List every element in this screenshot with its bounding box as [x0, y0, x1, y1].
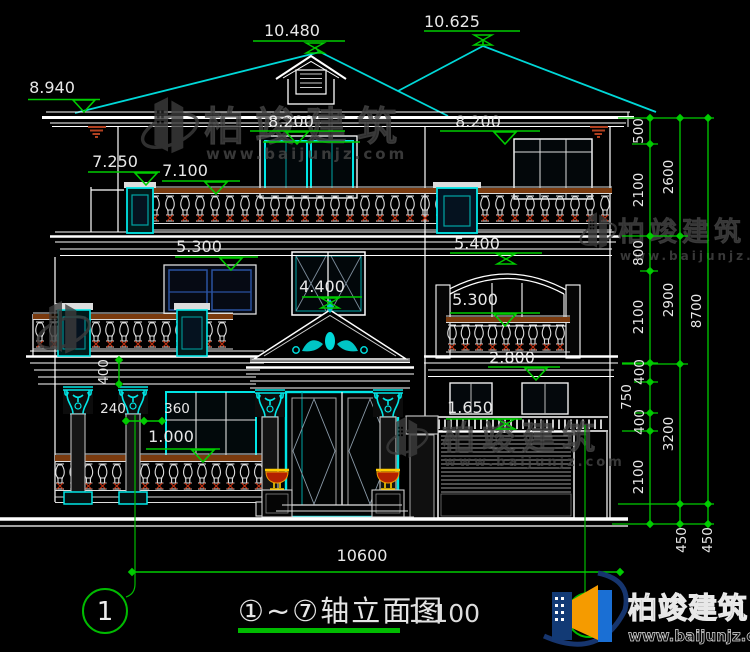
watermark-url: www.baijunjz.com — [444, 455, 625, 470]
elev-ridge-right: 10.625 — [424, 12, 480, 31]
dormer — [276, 56, 346, 104]
flower-urn — [262, 470, 292, 517]
balustrade-floor2-right — [446, 316, 570, 352]
svg-text:750: 750 — [619, 384, 635, 410]
title-underline — [238, 628, 400, 633]
drawing-scale: 1:100 — [408, 599, 480, 628]
svg-text:2100: 2100 — [631, 173, 647, 207]
cad-elevation-screenshot: 柏竣建筑 www.baijunjz.com 柏竣建筑 www.baijunjz.… — [0, 0, 750, 652]
elev-porch-rail: 1.000 — [148, 427, 194, 446]
elev-pediment: 4.400 — [299, 277, 345, 296]
entrance-entablature — [246, 361, 414, 388]
elev-window-head: 2.800 — [489, 348, 535, 367]
dim-overall-width: 10600 — [337, 546, 388, 565]
balustrade-floor2-left — [33, 303, 233, 356]
eave-bracket-icon — [88, 127, 106, 137]
elev-floor2-left: 5.300 — [176, 237, 222, 256]
elev-floor2-right: 5.300 — [452, 290, 498, 309]
dim-column-gap: 360 — [164, 401, 190, 417]
svg-text:8700: 8700 — [689, 294, 705, 328]
elev-garage-lintel: 1.650 — [447, 398, 493, 417]
svg-text:2600: 2600 — [661, 160, 677, 194]
svg-text:400: 400 — [96, 359, 112, 385]
elevation-drawing: 柏竣建筑 www.baijunjz.com 柏竣建筑 www.baijunjz.… — [0, 0, 750, 652]
svg-text:450: 450 — [700, 527, 716, 553]
svg-text:2100: 2100 — [631, 300, 647, 334]
logo-brand-text: 柏竣建筑 — [628, 591, 748, 625]
svg-text:2100: 2100 — [631, 460, 647, 494]
elev-floor3-right: 8.200 — [455, 112, 501, 131]
dim-column-width: 240 — [100, 401, 126, 417]
svg-text:3200: 3200 — [661, 417, 677, 451]
watermark-brand: 柏竣建筑 — [442, 418, 602, 457]
watermark-url: www.baijunjz.com — [206, 145, 407, 163]
elev-floor3-left: 8.200 — [268, 112, 314, 131]
balcony-post — [174, 303, 210, 356]
balustrade-floor3 — [124, 182, 612, 233]
parapet-post — [124, 182, 156, 233]
elev-floor2-right-upper: 5.400 — [454, 234, 500, 253]
eave-bracket-icon — [590, 127, 608, 137]
svg-text:400: 400 — [632, 359, 648, 385]
svg-text:800: 800 — [631, 240, 647, 266]
elev-eave-left: 8.940 — [29, 78, 75, 97]
ground-line — [0, 519, 628, 526]
elev-parapet-rail: 7.100 — [162, 161, 208, 180]
axis-bubble-number: 1 — [97, 597, 114, 627]
svg-text:400: 400 — [632, 409, 648, 435]
logo-url-text: www.baijunjz.com — [628, 627, 750, 645]
elev-ridge-left: 10.480 — [264, 21, 320, 40]
svg-text:500: 500 — [631, 118, 647, 144]
elev-parapet-post: 7.250 — [92, 152, 138, 171]
parapet-post — [433, 182, 481, 233]
svg-text:2900: 2900 — [661, 283, 677, 317]
brand-logo: 柏竣建筑 www.baijunjz.com — [544, 573, 750, 645]
svg-text:450: 450 — [674, 527, 690, 553]
